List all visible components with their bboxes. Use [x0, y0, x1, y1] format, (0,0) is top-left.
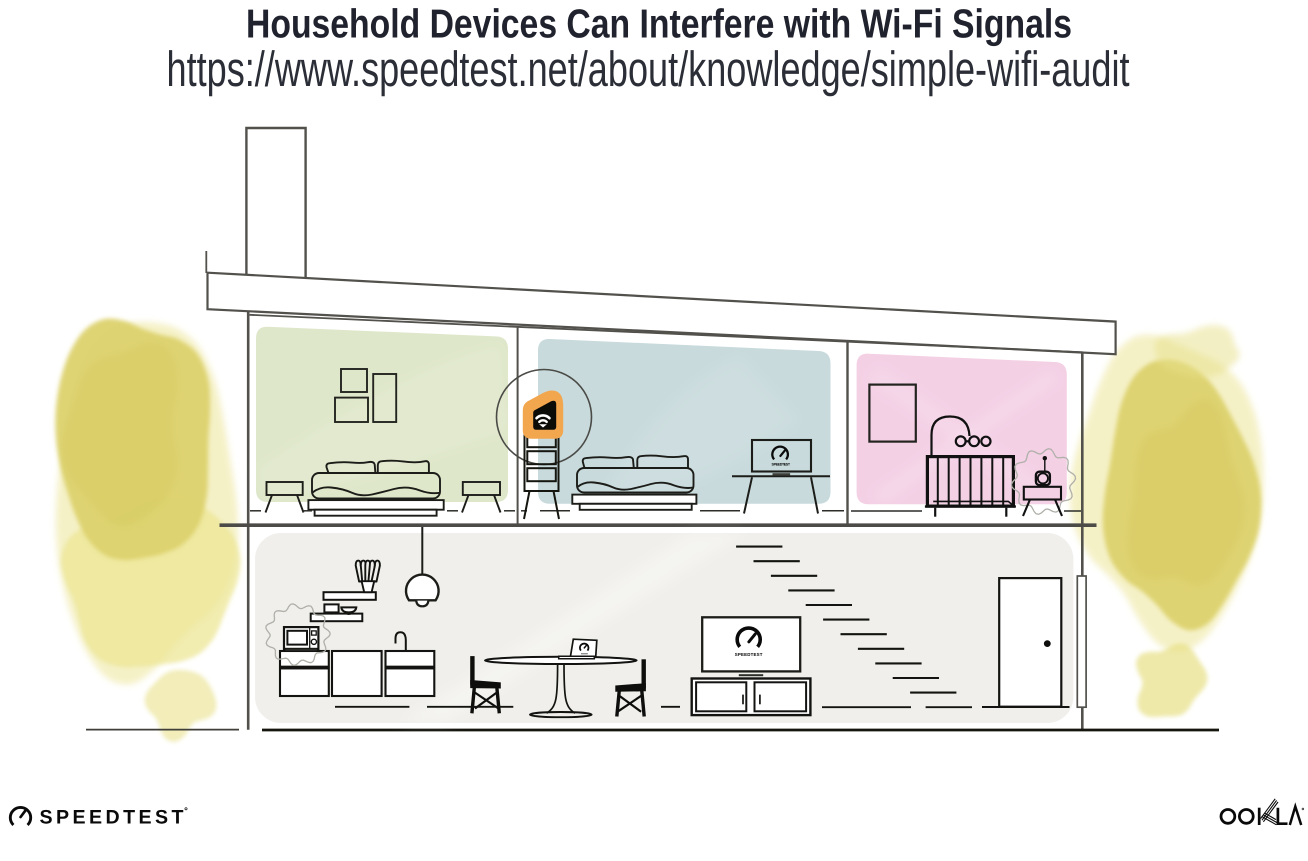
svg-text:SPEEDTEST: SPEEDTEST [772, 462, 791, 466]
svg-text:Household Devices Can Interfer: Household Devices Can Interfere with Wi-… [246, 0, 1072, 46]
svg-text:SPEEDTEST: SPEEDTEST [40, 806, 184, 828]
svg-text:SPEEDTEST: SPEEDTEST [735, 652, 763, 657]
svg-text:https://www.speedtest.net/abou: https://www.speedtest.net/about/knowledg… [167, 42, 1130, 97]
